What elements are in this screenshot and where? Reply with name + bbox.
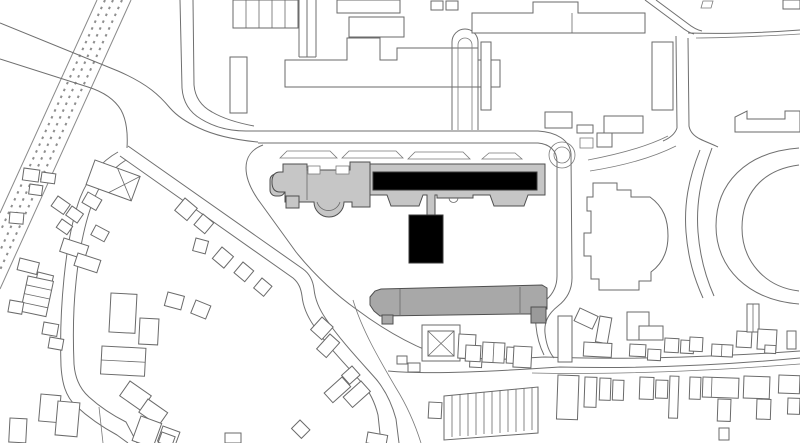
edge-building <box>783 0 800 9</box>
highlighted-building-main <box>373 172 537 190</box>
roof-notch <box>336 166 349 174</box>
striped-block <box>233 0 298 28</box>
small-building <box>597 133 612 147</box>
small-building <box>577 125 593 133</box>
annex-dark <box>531 307 546 323</box>
small-building <box>545 112 572 128</box>
tall-building <box>230 57 247 113</box>
paired-building <box>747 304 759 332</box>
small-building <box>446 1 458 10</box>
annex <box>286 196 299 208</box>
site-plan <box>0 0 800 443</box>
thin-building <box>481 42 491 110</box>
small-mark <box>580 138 593 148</box>
north-building <box>337 0 400 13</box>
tall-building <box>652 42 673 110</box>
small-building <box>604 116 643 133</box>
secondary-building-footprint <box>370 285 547 316</box>
annex <box>382 315 393 324</box>
highlighted-building-annex <box>409 215 443 263</box>
site-plan-drawing <box>0 0 800 443</box>
small-mark <box>701 1 713 8</box>
roof-notch <box>308 166 320 174</box>
small-building <box>431 1 443 10</box>
north-building <box>349 17 404 37</box>
